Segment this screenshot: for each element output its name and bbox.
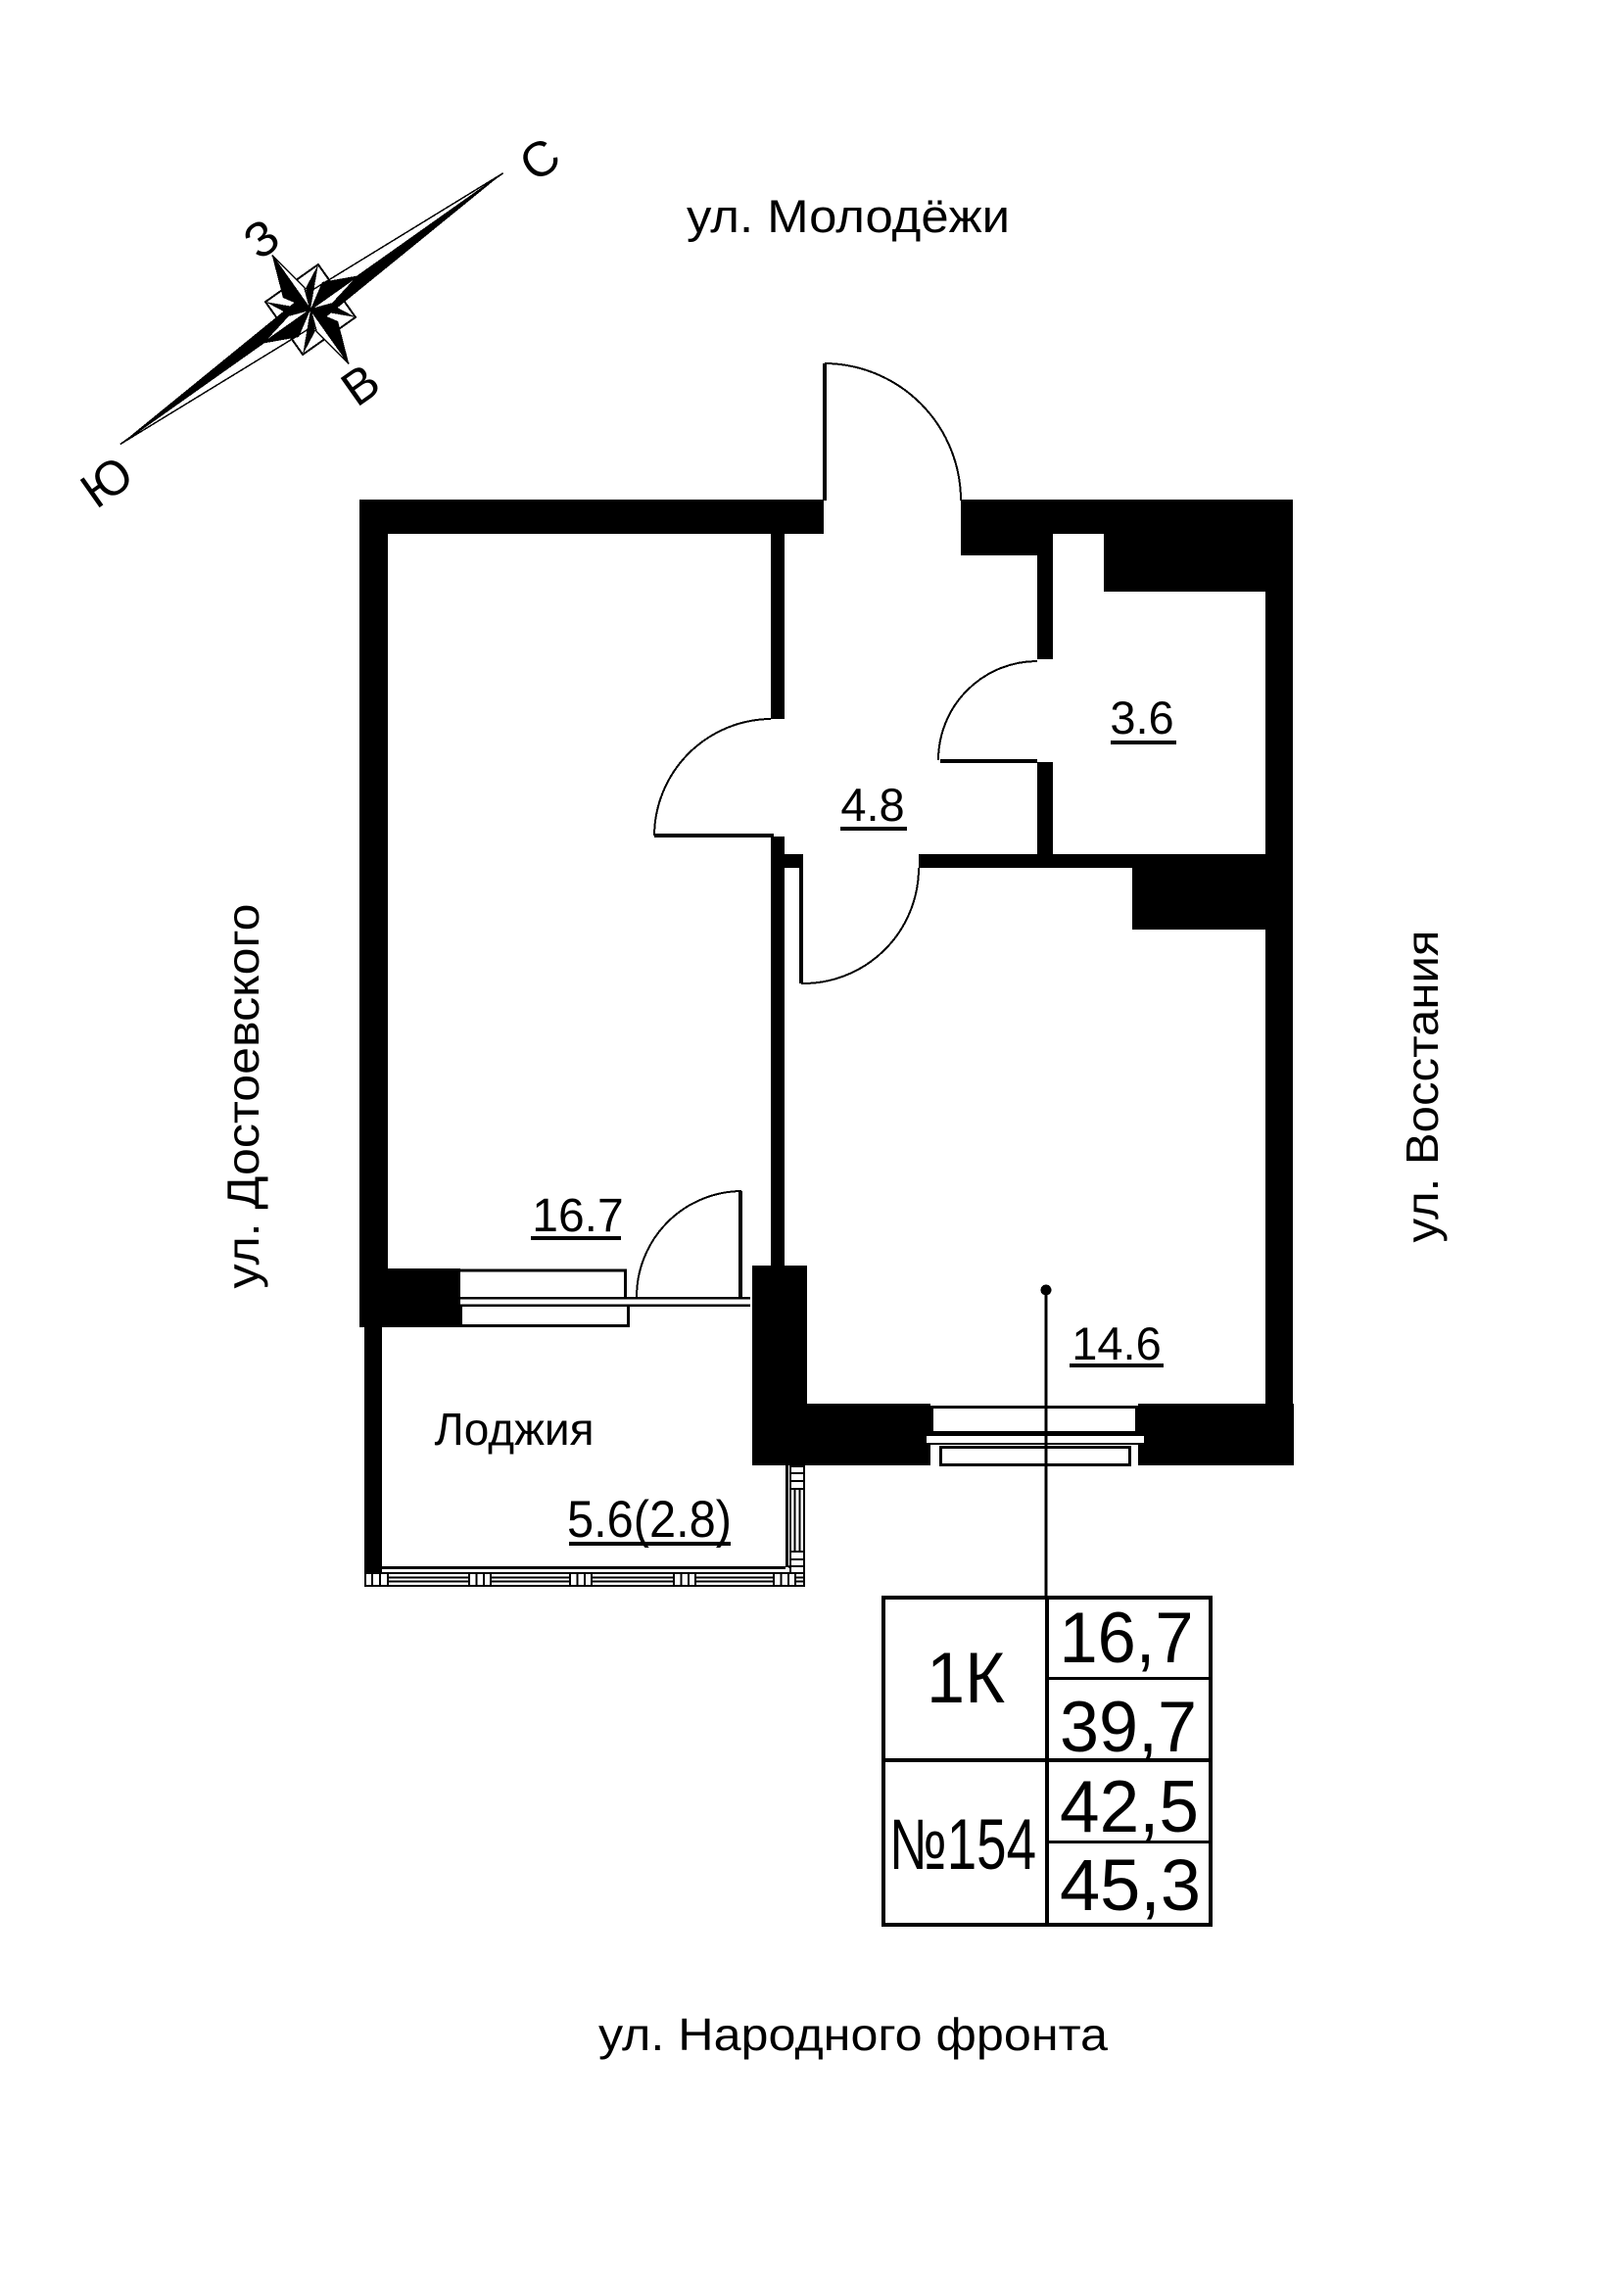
svg-text:№154: №154 <box>889 1805 1036 1885</box>
svg-text:Лоджия: Лоджия <box>435 1404 595 1455</box>
svg-text:ул. Достоевского: ул. Достоевского <box>217 904 268 1289</box>
svg-text:16.7: 16.7 <box>532 1190 623 1242</box>
svg-text:ул. Народного фронта: ул. Народного фронта <box>598 2009 1108 2060</box>
svg-text:5.6(2.8): 5.6(2.8) <box>567 1491 732 1549</box>
svg-text:3.6: 3.6 <box>1110 692 1173 743</box>
svg-text:14.6: 14.6 <box>1071 1317 1161 1369</box>
svg-text:ул. Восстания: ул. Восстания <box>1397 931 1448 1243</box>
svg-text:4.8: 4.8 <box>840 779 904 831</box>
svg-text:42,5: 42,5 <box>1060 1765 1199 1847</box>
svg-text:ул. Молодёжи: ул. Молодёжи <box>687 190 1010 242</box>
svg-text:16,7: 16,7 <box>1060 1599 1194 1678</box>
svg-text:45,3: 45,3 <box>1060 1844 1201 1926</box>
svg-text:39,7: 39,7 <box>1060 1688 1197 1767</box>
svg-text:1К: 1К <box>927 1639 1005 1718</box>
